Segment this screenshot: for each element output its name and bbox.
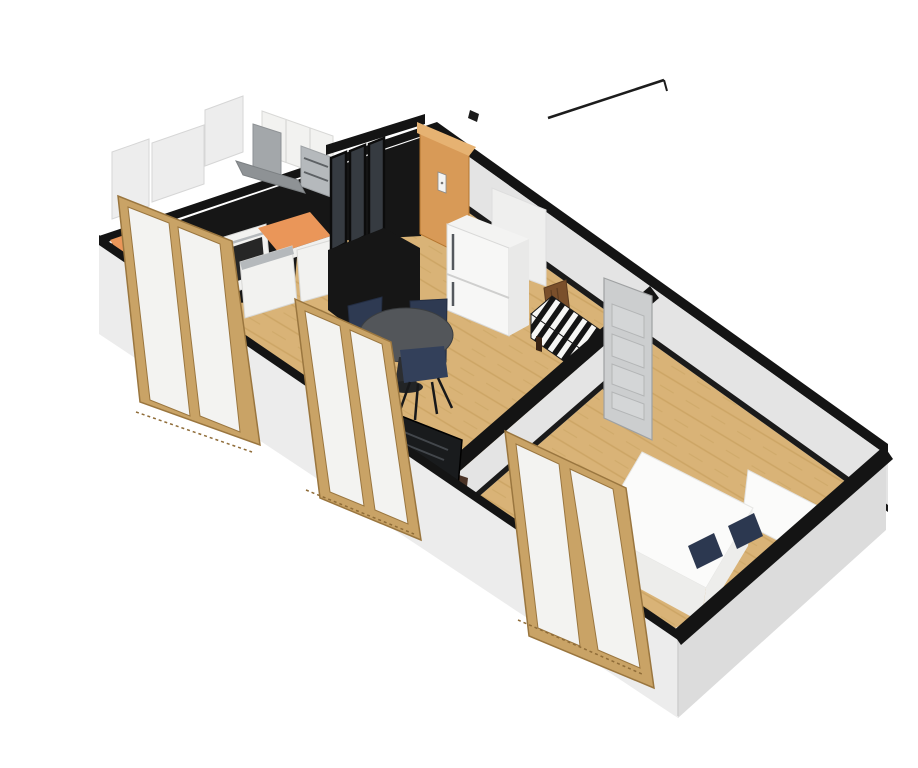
glass-panel-3 (369, 138, 384, 237)
door-frame-mark (468, 110, 479, 122)
glass-panel-2 (350, 145, 365, 244)
wall-panel-left-3 (205, 96, 243, 166)
interior-door (604, 278, 652, 440)
glass-panel-1 (331, 152, 346, 251)
apartment (99, 80, 893, 718)
entry-door-knob (441, 182, 444, 185)
daybed-leg-left (536, 336, 542, 352)
ceiling-rail-end (664, 80, 667, 91)
floorplan-screenshot (0, 0, 918, 768)
ceiling-rail (548, 80, 664, 118)
floorplan-3d-render (0, 0, 918, 768)
wall-panel-left-2 (152, 125, 204, 202)
dining-chair-front-seat (400, 346, 448, 383)
fridge-side (509, 239, 529, 336)
